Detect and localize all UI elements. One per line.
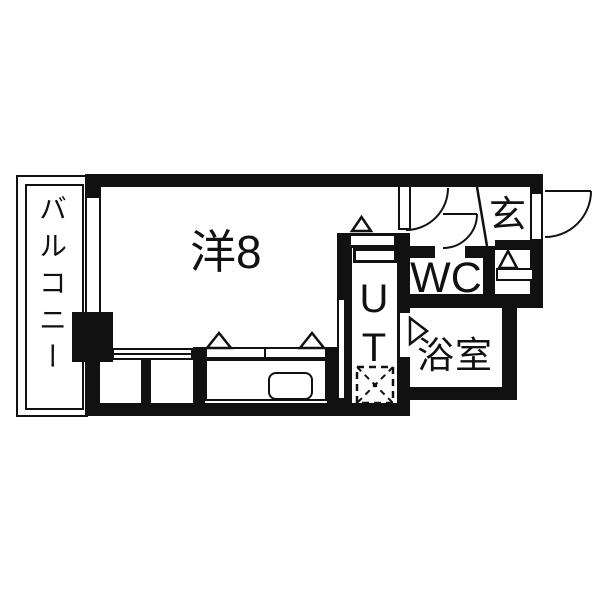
wc-door-arc (443, 214, 477, 248)
plan-symbols (0, 0, 600, 600)
entrance-door-arc (545, 191, 591, 237)
floor-plan: バルコニー 洋8 UT WC 玄 浴室 (0, 0, 600, 600)
bathroom-label: 浴室 (417, 337, 493, 374)
opening-marker-closet (207, 333, 231, 348)
utility-label: UT (352, 277, 396, 372)
entrance-label: 玄 (489, 196, 526, 233)
balcony-label: バルコニー (35, 194, 67, 409)
room-hall-door-arc (406, 188, 448, 230)
genkan-step-line (477, 187, 487, 246)
main-room-label: 洋8 (190, 229, 262, 275)
opening-marker-utility (352, 217, 371, 231)
wc-label: WC (408, 257, 484, 300)
opening-marker-genkan (499, 251, 517, 268)
opening-marker-kitchen (300, 333, 324, 348)
